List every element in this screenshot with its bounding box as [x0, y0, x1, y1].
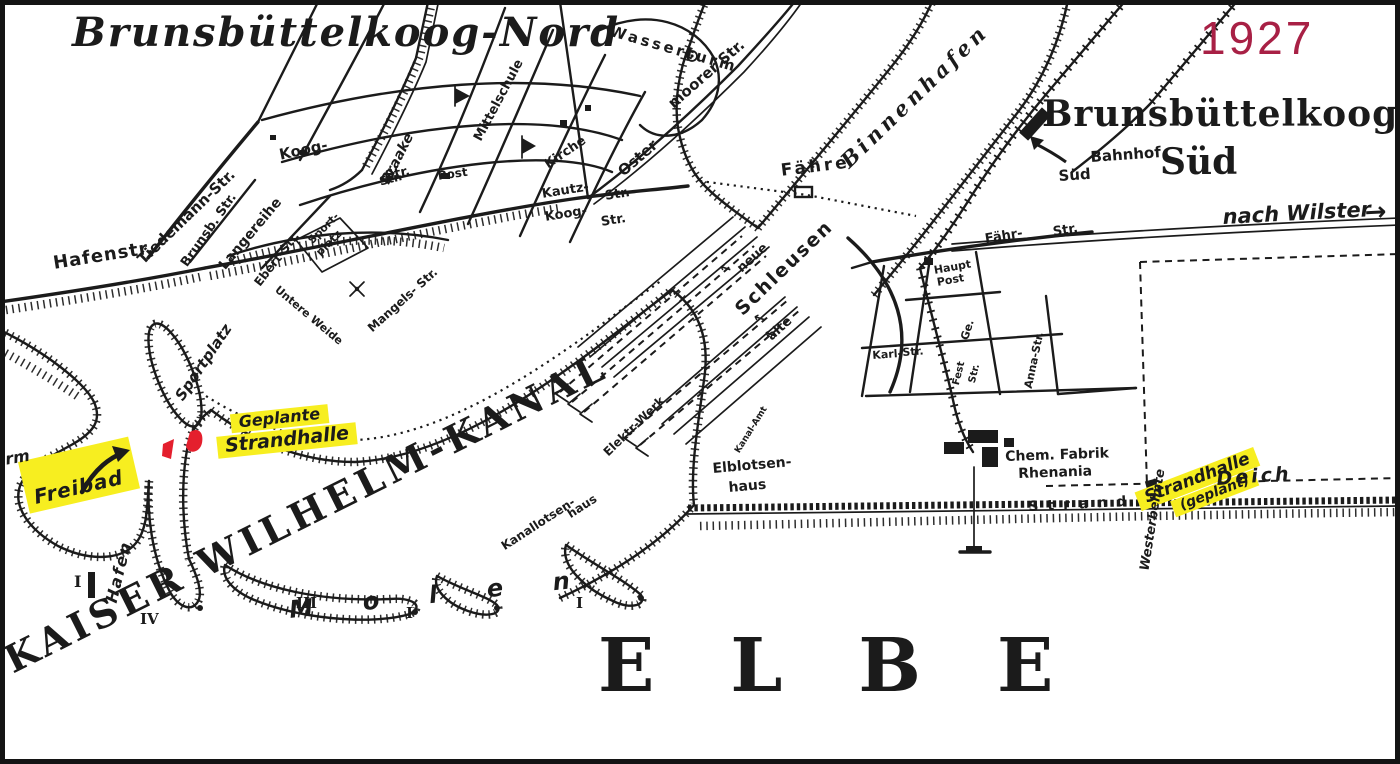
title-nord: Brunsbüttelkoog-Nord	[72, 12, 620, 54]
windmill-symbol	[350, 282, 364, 296]
mole-numeral-IV: IV	[140, 612, 159, 628]
mole-numeral-I-east: I	[576, 596, 583, 612]
title-sued-line1: Brunsbüttelkoog-	[1042, 96, 1400, 134]
chem-fabrik-label-line2: Rhenania	[1018, 464, 1092, 481]
karl-str-suffix: Str.	[902, 346, 924, 359]
bahnhof-sued-label-line2: Süd	[1058, 167, 1091, 185]
factory-rhenania	[944, 430, 1014, 553]
ferry-route	[700, 181, 916, 216]
mole-numeral-I-west: I	[74, 574, 81, 591]
karl-str-label: Karl-	[872, 348, 902, 362]
mole-numeral-I-mid: I	[406, 606, 413, 622]
title-elbe: ELBE	[598, 628, 1129, 706]
railways	[920, 0, 1238, 452]
nach-wilster-arrow-icon: →	[1364, 199, 1387, 227]
title-sued-line2: Süd	[1160, 144, 1237, 182]
roads-southeast-grid	[848, 232, 1136, 396]
mole-numeral-III: III	[296, 596, 317, 612]
historical-map-brunsbuettelkoog: Brunsbüttelkoog-Nord 1927 Brunsbüttelkoo…	[0, 0, 1400, 764]
elblotsenhaus-label-line2: haus	[728, 478, 767, 496]
year-badge: 1927	[1200, 14, 1314, 62]
